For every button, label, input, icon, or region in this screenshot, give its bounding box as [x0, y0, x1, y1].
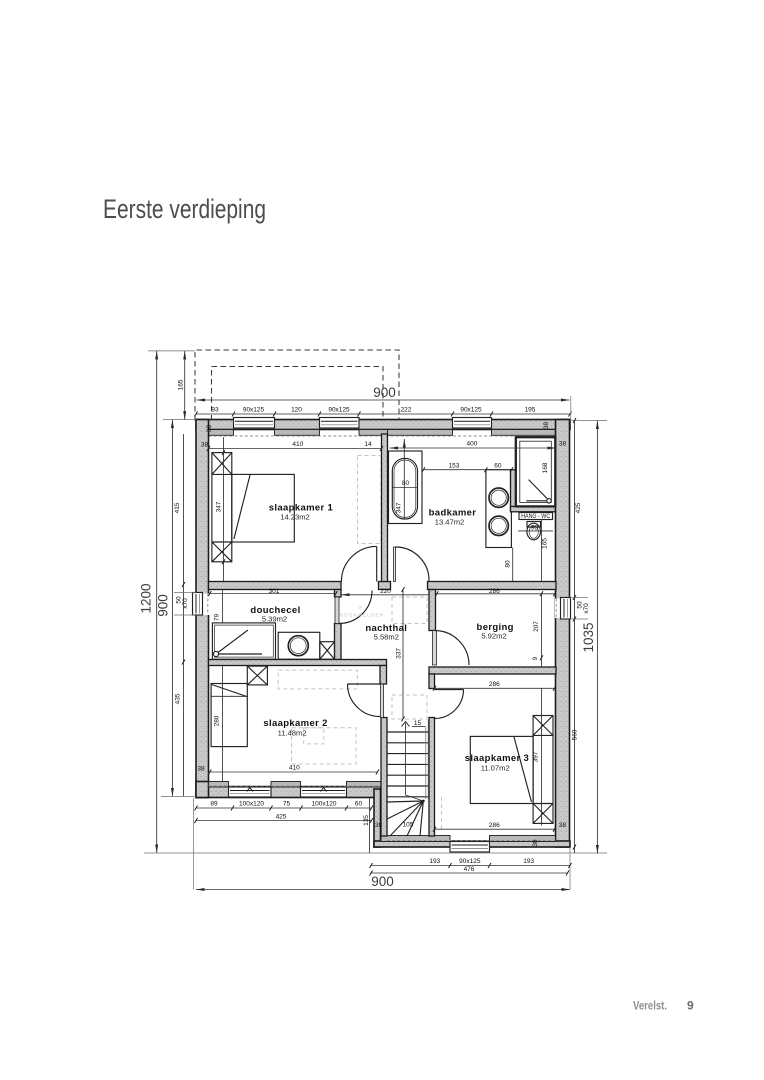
svg-text:90x125: 90x125	[459, 858, 481, 865]
svg-text:13.47m2: 13.47m2	[435, 518, 465, 527]
svg-text:397: 397	[533, 751, 540, 762]
svg-text:75: 75	[283, 801, 291, 808]
svg-text:165: 165	[541, 538, 548, 549]
svg-text:193: 193	[523, 858, 534, 865]
svg-text:38: 38	[559, 441, 567, 448]
svg-text:60: 60	[494, 462, 502, 469]
svg-text:Eerste verdieping: Eerste verdieping	[103, 194, 266, 224]
svg-text:347: 347	[216, 501, 223, 512]
svg-text:1035: 1035	[581, 622, 596, 652]
svg-text:5.39m2: 5.39m2	[262, 615, 287, 624]
svg-text:14.23m2: 14.23m2	[280, 513, 310, 522]
svg-text:slaapkamer 3: slaapkamer 3	[465, 753, 529, 764]
svg-text:38: 38	[543, 422, 550, 430]
svg-text:93: 93	[531, 524, 539, 531]
svg-text:80: 80	[402, 480, 410, 487]
svg-text:14: 14	[364, 441, 372, 448]
svg-text:38: 38	[375, 822, 383, 829]
svg-text:80: 80	[504, 560, 511, 568]
svg-text:slaapkamer 2: slaapkamer 2	[263, 718, 327, 729]
svg-text:410: 410	[289, 765, 300, 772]
svg-text:11.48m2: 11.48m2	[278, 729, 307, 738]
svg-text:5.58m2: 5.58m2	[374, 633, 399, 642]
svg-text:38: 38	[206, 425, 213, 433]
svg-text:900: 900	[155, 594, 170, 617]
svg-text:165: 165	[178, 379, 185, 390]
svg-text:153: 153	[449, 462, 460, 469]
svg-text:400: 400	[466, 441, 477, 448]
svg-text:168: 168	[542, 462, 549, 473]
svg-text:9: 9	[532, 656, 539, 660]
svg-text:347: 347	[396, 502, 403, 513]
svg-text:207: 207	[533, 621, 540, 632]
svg-text:x70: x70	[583, 603, 590, 614]
svg-text:Verelst.: Verelst.	[633, 999, 667, 1013]
svg-text:HANG - WC: HANG - WC	[521, 513, 550, 520]
svg-text:89: 89	[210, 801, 218, 808]
svg-text:100x120: 100x120	[312, 801, 337, 808]
svg-text:337: 337	[396, 648, 403, 659]
svg-text:90x125: 90x125	[460, 407, 482, 414]
svg-text:93: 93	[211, 407, 219, 414]
svg-text:222: 222	[401, 407, 412, 414]
svg-text:135: 135	[363, 815, 370, 826]
svg-text:286: 286	[489, 588, 500, 595]
svg-text:38: 38	[532, 839, 539, 847]
svg-text:560: 560	[572, 729, 579, 740]
svg-text:38: 38	[197, 766, 205, 773]
svg-text:286: 286	[489, 681, 500, 688]
svg-text:15: 15	[414, 720, 422, 727]
svg-text:100x120: 100x120	[239, 801, 264, 808]
svg-text:120: 120	[291, 407, 302, 414]
svg-text:105: 105	[403, 822, 414, 829]
svg-text:301: 301	[269, 588, 280, 595]
svg-text:90x125: 90x125	[243, 407, 265, 414]
svg-text:415: 415	[174, 502, 181, 513]
svg-text:193: 193	[429, 858, 440, 865]
svg-text:280: 280	[214, 715, 221, 726]
svg-text:1200: 1200	[139, 583, 154, 613]
svg-text:220: 220	[380, 588, 391, 595]
svg-text:ROOKMELDER: ROOKMELDER	[340, 612, 385, 617]
svg-text:195: 195	[525, 407, 536, 414]
svg-text:38: 38	[559, 822, 567, 829]
svg-text:900: 900	[373, 385, 396, 400]
svg-text:410: 410	[292, 441, 303, 448]
svg-text:90x125: 90x125	[328, 407, 350, 414]
svg-text:435: 435	[175, 693, 182, 704]
svg-text:79: 79	[214, 614, 221, 622]
svg-text:476: 476	[464, 866, 475, 873]
svg-text:425: 425	[276, 813, 287, 820]
svg-text:5.92m2: 5.92m2	[481, 632, 506, 641]
svg-text:425: 425	[575, 502, 582, 513]
svg-text:x70: x70	[182, 598, 189, 609]
svg-text:38: 38	[201, 442, 209, 449]
svg-text:900: 900	[371, 874, 394, 889]
svg-text:286: 286	[489, 822, 500, 829]
svg-text:9: 9	[687, 999, 694, 1013]
svg-text:60: 60	[355, 801, 363, 808]
svg-text:11.07m2: 11.07m2	[481, 764, 510, 773]
